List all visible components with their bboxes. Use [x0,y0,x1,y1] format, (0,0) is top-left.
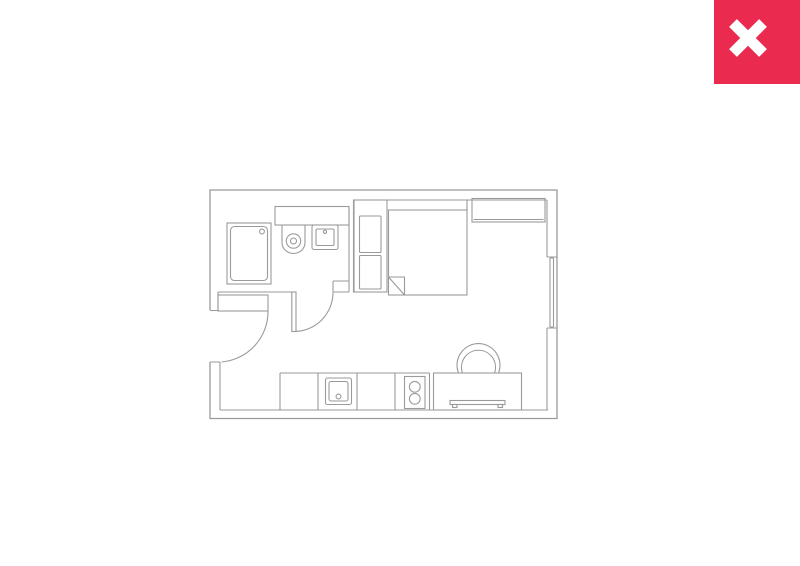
toilet [282,225,305,254]
bathtub [227,223,271,284]
desk-chair [457,344,500,373]
bathroom-door [292,292,333,332]
bathroom-counter [275,207,349,226]
wash-basin [312,225,338,250]
window [550,258,554,327]
stove [405,377,426,409]
kitchen-counter [280,373,430,410]
floorplan-image [0,0,800,566]
desk [434,373,522,410]
close-button[interactable] [714,0,800,84]
wardrobe [354,200,388,292]
kitchen-sink [326,378,352,405]
interior-walls [210,200,557,410]
duvet-fold [389,277,405,295]
entry-door [218,295,268,362]
image-viewer [0,0,800,566]
double-bed [389,200,468,295]
outer-walls [210,190,557,419]
overbed-shelf [472,199,545,223]
floor-plan [210,190,557,419]
